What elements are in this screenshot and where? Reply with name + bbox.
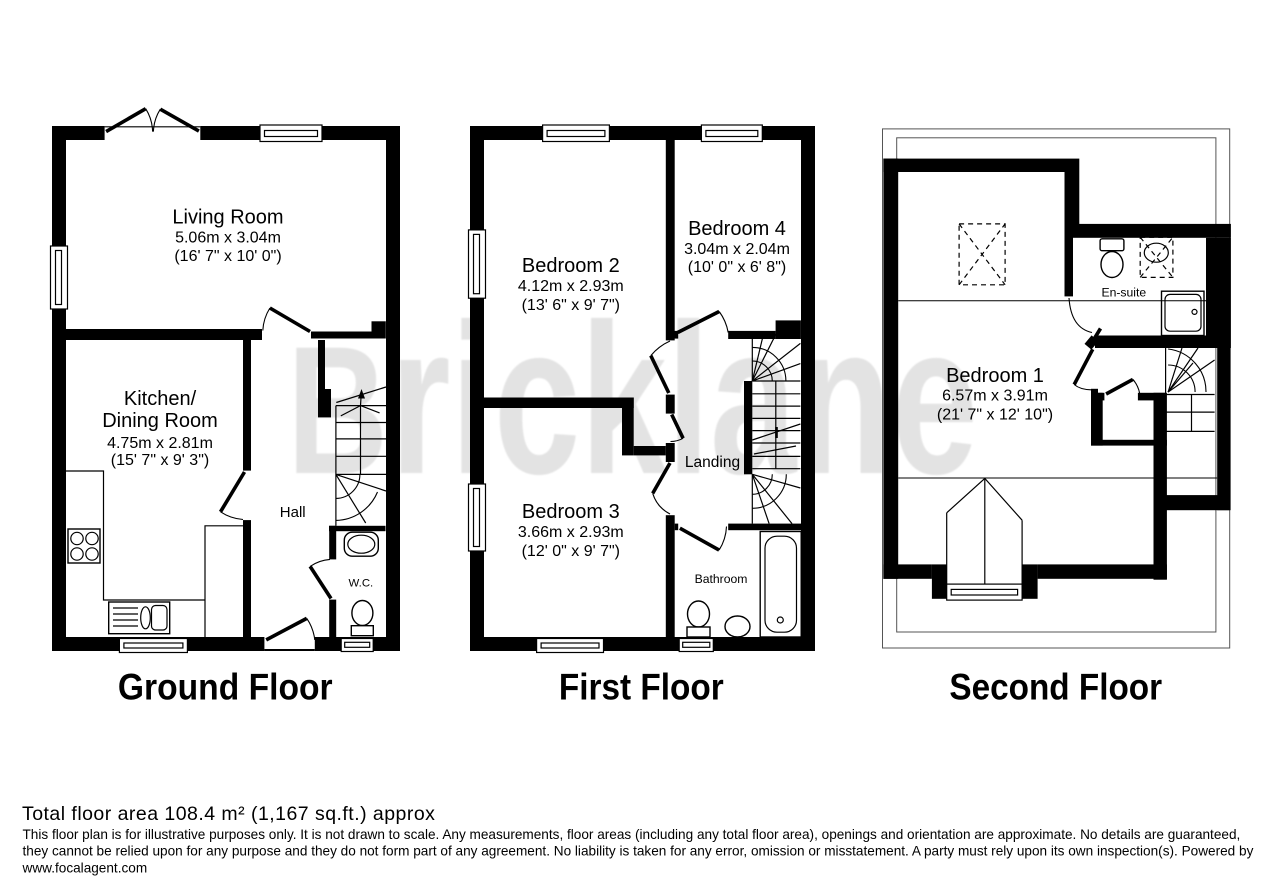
svg-text:www.focalagent.com: www.focalagent.com [22,860,148,875]
svg-text:Ground Floor: Ground Floor [118,667,333,708]
svg-text:4.75m x 2.81m: 4.75m x 2.81m [107,435,213,452]
svg-text:3.66m x 2.93m: 3.66m x 2.93m [518,524,624,541]
svg-text:5.06m x 3.04m: 5.06m x 3.04m [175,230,281,247]
svg-text:Hall: Hall [280,504,306,521]
svg-text:(10' 0" x 6' 8"): (10' 0" x 6' 8") [688,259,786,276]
svg-text:(15' 7" x 9' 3"): (15' 7" x 9' 3") [111,452,209,469]
svg-text:6.57m x 3.91m: 6.57m x 3.91m [942,388,1048,405]
svg-text:Bedroom 3: Bedroom 3 [522,501,620,523]
svg-text:En-suite: En-suite [1101,285,1146,299]
svg-text:Kitchen/: Kitchen/ [124,388,197,410]
svg-text:Dining Room: Dining Room [102,410,218,432]
svg-text:Total floor area 108.4 m² (1,1: Total floor area 108.4 m² (1,167 sq.ft.)… [22,803,435,825]
svg-text:Living Room: Living Room [172,207,283,229]
svg-text:(12' 0" x 9' 7"): (12' 0" x 9' 7") [522,543,620,560]
svg-text:This floor plan is for illustr: This floor plan is for illustrative purp… [23,827,1241,842]
svg-text:Landing: Landing [685,454,740,471]
svg-text:4.12m x 2.93m: 4.12m x 2.93m [518,278,624,295]
svg-text:W.C.: W.C. [349,578,374,590]
svg-text:(16' 7" x 10' 0"): (16' 7" x 10' 0") [174,248,281,265]
svg-text:they cannot be relied upon for: they cannot be relied upon for any purpo… [23,844,1254,859]
svg-text:Bedroom 1: Bedroom 1 [946,365,1044,387]
svg-text:Second Floor: Second Floor [949,667,1162,708]
svg-text:Bedroom 4: Bedroom 4 [688,218,786,240]
svg-text:(21' 7" x 12' 10"): (21' 7" x 12' 10") [937,407,1053,424]
svg-text:3.04m x 2.04m: 3.04m x 2.04m [684,241,790,258]
svg-text:Bathroom: Bathroom [695,572,748,586]
svg-text:(13' 6" x 9' 7"): (13' 6" x 9' 7") [522,297,620,314]
svg-text:First Floor: First Floor [559,667,724,708]
svg-text:Bedroom 2: Bedroom 2 [522,255,620,277]
